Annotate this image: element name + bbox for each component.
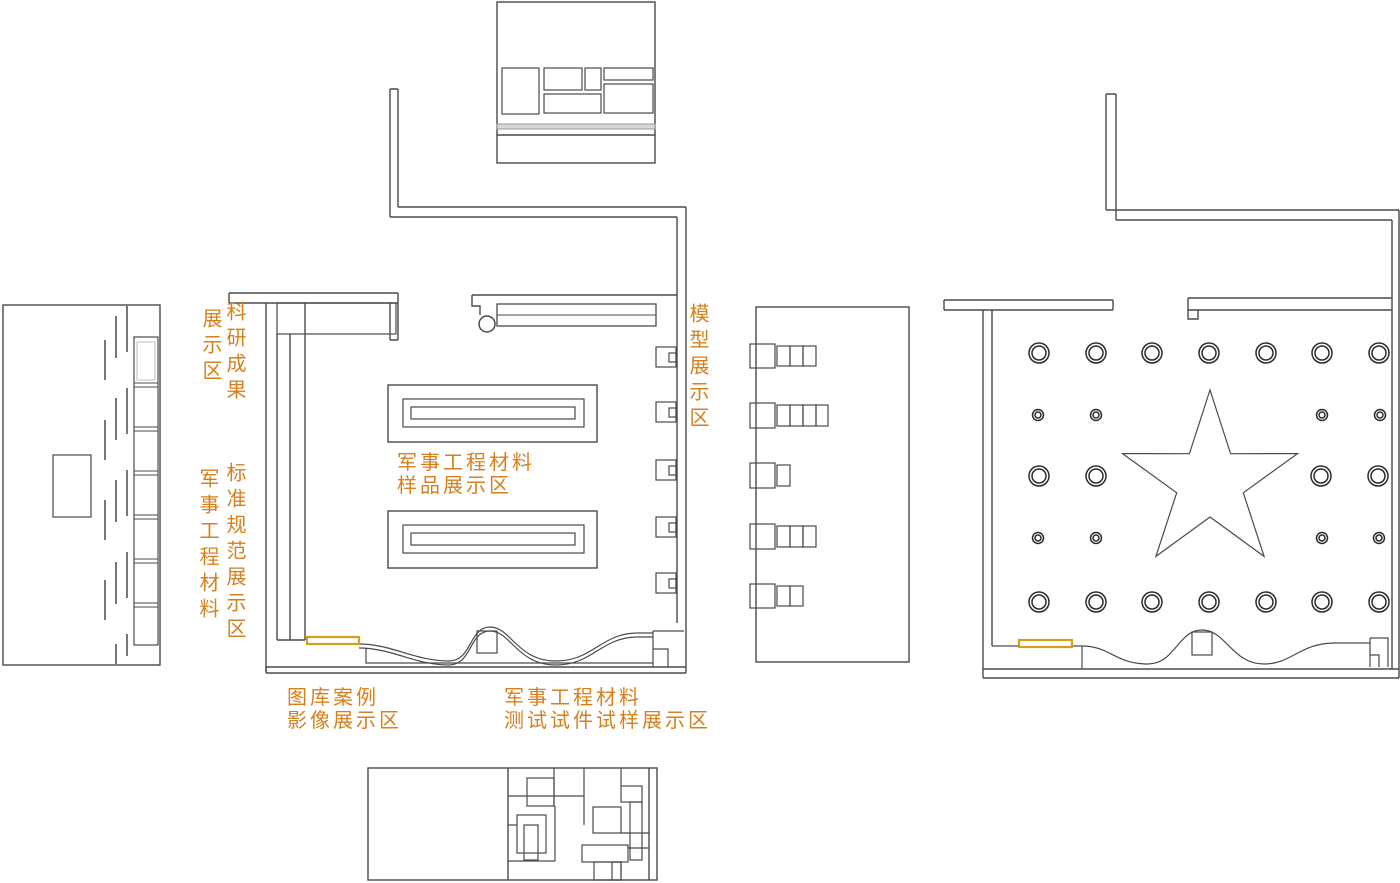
bottom-elevation <box>368 768 657 880</box>
label-test-specimen-line2: 测试试件试样展示区 <box>504 709 711 732</box>
label-samples-line1: 军事工程材料 <box>397 451 535 474</box>
wavy-display-platform-right <box>992 630 1388 669</box>
top-elevation <box>497 2 655 163</box>
mondrian-panel <box>508 768 649 880</box>
left-elevation <box>3 305 160 665</box>
label-gallery-line2: 影像展示区 <box>287 709 402 732</box>
label-materials-standards-col2: 军事工程材料 <box>197 468 219 624</box>
model-wall-section <box>750 307 909 662</box>
sample-display-table-1 <box>388 385 597 442</box>
label-model-display: 模型展示区 <box>687 303 709 433</box>
display-niche-rows <box>750 344 828 608</box>
star-room-plan <box>944 94 1399 678</box>
main-floor-plan <box>229 89 686 673</box>
highlight-strip <box>307 637 359 644</box>
highlight-strip-right <box>1019 640 1072 647</box>
label-research-display-col1: 科研成果 <box>224 301 246 405</box>
label-research-display-col2: 展示区 <box>200 308 222 386</box>
wavy-display-platform <box>359 627 684 667</box>
top-display-shelf <box>497 304 656 326</box>
label-test-specimen-line1: 军事工程材料 <box>504 686 711 709</box>
label-samples-line2: 样品展示区 <box>397 474 535 497</box>
ladder-display-column <box>134 337 158 645</box>
floor-plan-canvas: 科研成果 展示区 标准规范展示区 军事工程材料 模型展示区 军事工程材料 样品展… <box>0 0 1400 883</box>
entry-corridor-wall <box>390 89 686 667</box>
sample-display-table-2 <box>388 511 597 568</box>
plan-drawing-svg <box>0 0 1400 883</box>
label-samples-display: 军事工程材料 样品展示区 <box>397 451 535 497</box>
model-display-cases <box>656 347 676 593</box>
label-materials-standards-col1: 标准规范展示区 <box>224 462 246 644</box>
label-test-specimen-display: 军事工程材料 测试试件试样展示区 <box>504 686 711 732</box>
column-circle <box>479 316 495 332</box>
star-shape <box>1123 390 1298 556</box>
label-gallery-display: 图库案例 影像展示区 <box>287 686 402 732</box>
label-gallery-line1: 图库案例 <box>287 686 402 709</box>
